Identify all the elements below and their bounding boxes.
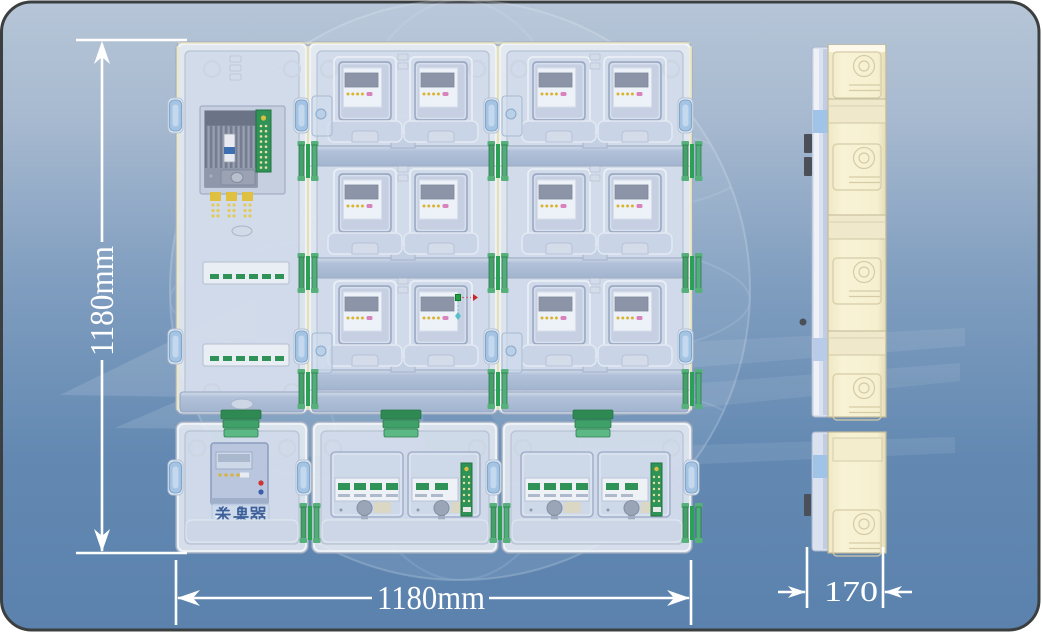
svg-text:1180mm: 1180mm [84, 246, 121, 356]
svg-text:170: 170 [824, 577, 878, 608]
svg-text:1180mm: 1180mm [377, 580, 485, 617]
